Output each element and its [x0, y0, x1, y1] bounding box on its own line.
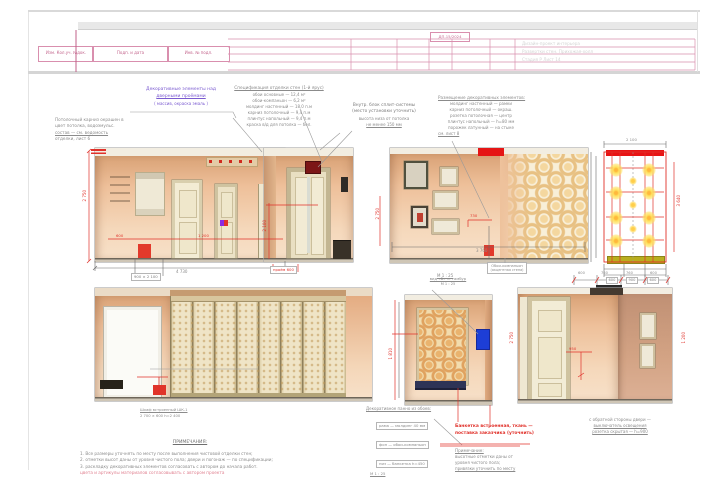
spec-b-title2: (место установки уточнить)	[344, 109, 424, 115]
elev6-note-row: розетка скрытая — h=900	[584, 429, 656, 435]
titleblock-ghost-row-1: Дизайн-проект интерьера	[522, 41, 580, 47]
elev6-picture-1	[640, 313, 656, 339]
dim-elev3-width: 3 760	[476, 248, 487, 254]
elev1-marker-red	[224, 220, 228, 226]
note-block-d: Потолочный карниз окрашен в цвет потолка…	[55, 117, 139, 142]
elev5-right-jamb	[485, 300, 492, 400]
spotlight-icon	[642, 211, 656, 225]
spec-block-c: Размещение декоративных элементов: молди…	[438, 95, 524, 137]
elev1-wall-hooks	[110, 176, 130, 206]
elev1-red-block-left	[138, 244, 151, 258]
elev5-intercom	[476, 329, 490, 350]
spec-c-footer: см. лист 8	[438, 131, 524, 137]
elev5-decor-panel	[417, 308, 468, 385]
elev6-dark-header	[590, 288, 623, 295]
spotlight-icon	[642, 234, 656, 248]
elev4-floor	[95, 397, 372, 401]
dim-elev6-height: 2 750	[509, 332, 515, 343]
elev1-mirror	[135, 172, 165, 216]
elevation-2	[264, 148, 353, 262]
elevation-6	[518, 288, 672, 403]
elev4-wall-right	[346, 296, 372, 397]
dim-elev1-red-a: 600	[116, 233, 123, 239]
purple-note: Декоративные элементы над дверными проём…	[128, 87, 234, 107]
spotlight-icon	[642, 186, 656, 200]
spec-a-row: краска в/д для потолка — бел.	[225, 122, 333, 128]
elev5-spec-row: рама — молдинг 40 мм	[376, 422, 428, 430]
elev2-darkred-box	[305, 161, 321, 174]
spotlight-icon	[642, 163, 656, 177]
small-light-icon	[629, 177, 637, 185]
dim-gap-red: 2 750	[375, 208, 381, 219]
sheet-top-line	[28, 10, 700, 12]
elevation-1	[95, 148, 285, 262]
elev5-top-line2: М 1 : 25	[428, 282, 468, 287]
spotlight-icon	[609, 211, 623, 225]
elev5-spec-title: Декоративное панно из обоев:	[366, 406, 436, 412]
elev5-spec-block: Декоративное панно из обоев: рама — молд…	[366, 406, 436, 477]
stamp-cell-1: Изм. Кол.уч. №док.	[38, 46, 94, 62]
dim-elev1-height: 2 750	[82, 190, 88, 201]
dim-elev5-red-v: 1 810	[388, 348, 394, 359]
elev3-label-line2: (акцентная стена)	[488, 268, 526, 272]
elevation-5	[405, 295, 492, 405]
elev5-top-label: вид «Б» — тамбур М 1 : 25	[428, 276, 468, 287]
red-note-block: Банкетка встроенная, ткань — поставка за…	[455, 424, 535, 437]
elev2-door-mirror	[307, 177, 310, 253]
drawing-sheet: Изм. Кол.уч. №док. Подп. и дата Инв. № п…	[0, 0, 720, 480]
notes-red-line: цвета и артикулы материалов согласовыват…	[80, 470, 320, 476]
notes-block: 1. Все размеры уточнять по месту после в…	[80, 451, 320, 476]
elev5-gray-note: Примечание: высотные отметки даны от уро…	[455, 448, 537, 472]
dim-elev6-red: 950	[569, 346, 576, 352]
title-block-band-bottom	[28, 71, 700, 74]
dim-plan-cell-1: 600	[606, 277, 618, 284]
elev3-label-box: Обои-компаньон (акцентная стена)	[487, 262, 527, 274]
stamp-cell-2: Подп. и дата	[92, 46, 169, 62]
dim-elev6-seg-2: 760	[601, 271, 608, 276]
dim-plan-cell-3: 600	[647, 277, 659, 284]
elev4-red-marker	[153, 385, 166, 395]
dim-elev1-door-box: 900 × 2 100	[131, 273, 161, 281]
elev5-gray-row: привязки уточнить по месту	[455, 466, 537, 472]
plan-yellow-bar	[607, 256, 665, 264]
elev5-spec-row: фон — обои-компаньон	[376, 441, 429, 449]
elev1-floor	[95, 258, 285, 262]
elev4-note: Шкаф встроенный ШК-1 2 700 × 600 h=2 400	[140, 408, 186, 419]
elev6-note: с обратной стороны двери — выключатель о…	[584, 417, 656, 435]
spec-block-b: Внутр. блок сплит-системы (место установ…	[344, 103, 424, 128]
elev6-door	[528, 297, 570, 399]
dim-elev6-seg-1: 600	[578, 271, 585, 276]
dim-elev2-red-v: 2 100	[262, 220, 268, 231]
elev4-note-line2: 2 700 × 600 h=2 400	[140, 414, 186, 420]
spotlight-icon	[609, 163, 623, 177]
small-light-icon	[629, 225, 637, 233]
elev6-picture-2	[640, 344, 655, 368]
elev3-picture-4	[411, 206, 428, 228]
dim-plan-right: 3 640	[676, 195, 682, 206]
elev3-picture-5	[432, 219, 459, 234]
elev5-bench	[415, 381, 466, 390]
titleblock-ghost-row-2: Развертки стен. Прихожая-холл	[522, 49, 593, 55]
sheet-right-margin-line	[697, 10, 698, 72]
red-note-line1: Банкетка встроенная, ткань —	[455, 424, 535, 431]
elev5-spec-footer: М 1 : 25	[370, 471, 436, 477]
dim-elev1-width: 4 730	[176, 269, 187, 275]
dim-elev6-right: 1 200	[681, 332, 687, 343]
elev3-red-bar	[478, 148, 504, 156]
elev3-picture-3	[433, 191, 458, 209]
elev1-corner-red-mark	[91, 149, 106, 154]
dim-plan-cell-2: 900	[626, 277, 638, 284]
project-code-box: ДП-15/2024	[430, 32, 470, 42]
note-d-row: отделки, лист 6	[55, 136, 139, 142]
dim-elev3-red: 730	[470, 213, 477, 219]
spotlight-icon	[609, 234, 623, 248]
elev6-floor	[518, 399, 672, 403]
elev3-wallpaper-fade	[500, 154, 530, 258]
elev2-return-wall	[264, 156, 276, 258]
elev1-shelf-red-marks	[209, 160, 253, 163]
elev3-picture-2	[440, 167, 458, 186]
stamp-cell-3-label: Инв. № подл.	[168, 50, 229, 56]
stamp-cell-3: Инв. № подл.	[167, 46, 230, 62]
elev2-sconce	[341, 177, 348, 192]
elevation-3	[390, 148, 588, 263]
elev2-entry-door	[287, 168, 330, 258]
dim-elev2-opening: проём 600	[270, 266, 297, 274]
wardrobe-cornice	[171, 296, 347, 302]
spec-b-row2: не менее 150 мм	[344, 122, 424, 128]
elev5-floor	[405, 400, 492, 405]
elev5-top-line1: вид «Б» — тамбур	[428, 276, 468, 282]
elev4-note-line1: Шкаф встроенный ШК-1	[140, 408, 186, 414]
purple-note-line1: Декоративные элементы над	[128, 87, 234, 94]
small-light-icon	[629, 201, 637, 209]
stamp-cell-1-label: Изм. Кол.уч. №док.	[39, 50, 93, 56]
dim-elev6-seg-3: 760	[626, 271, 633, 276]
dim-elev1-red-b: 1 200	[198, 233, 209, 239]
elev2-cabinet	[333, 240, 351, 259]
elev1-shelf-strip	[206, 157, 258, 167]
title-block-band-top	[78, 22, 697, 30]
red-note-line2: поставка заказчика (уточнить)	[455, 431, 535, 438]
spotlight-icon	[609, 186, 623, 200]
elev3-picture-1	[404, 161, 428, 189]
spec-block-a: Спецификация отделки стен (1-й ярус) обо…	[225, 86, 333, 128]
titleblock-ghost-row-3: Стадия Р Лист 14	[522, 57, 561, 63]
elev4-door-mat	[100, 380, 123, 389]
elevation-4	[95, 288, 372, 401]
elev5-spec-row: низ — банкетка h=450	[376, 460, 428, 468]
plan-red-bar	[606, 150, 664, 156]
stamp-cell-2-label: Подп. и дата	[93, 50, 168, 56]
elev1-door-1	[172, 180, 202, 258]
dim-elev6-seg-4: 600	[650, 271, 657, 276]
sheet-left-margin-line	[28, 10, 29, 470]
purple-note-line2: дверными проёмами	[128, 94, 234, 101]
dim-plan-top: 2 100	[626, 137, 637, 143]
notes-title: ПРИМЕЧАНИЯ:	[155, 440, 225, 447]
purple-note-line3: ( массив, окраска эмаль )	[128, 101, 234, 107]
project-code-label: ДП-15/2024	[431, 34, 469, 40]
elev4-wardrobe	[170, 296, 348, 397]
